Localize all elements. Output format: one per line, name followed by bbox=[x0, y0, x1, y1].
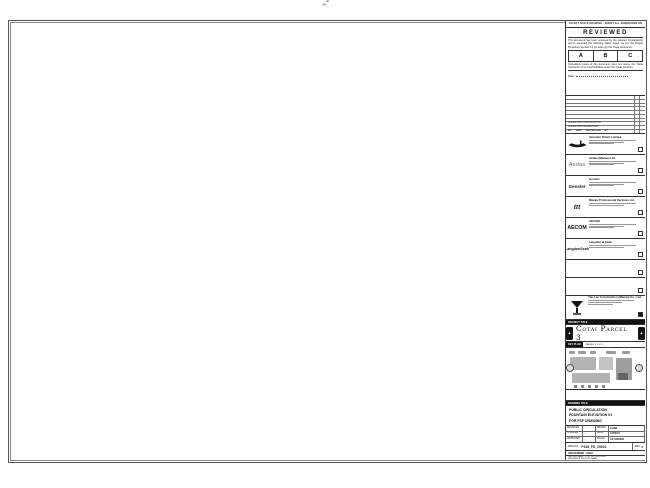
grade-b-cell: B bbox=[594, 51, 619, 61]
revision-col-divider bbox=[639, 96, 640, 133]
key-plan-node-icon bbox=[635, 364, 643, 372]
review-stamp-paragraph: This document has been reviewed by the r… bbox=[568, 39, 643, 49]
revision-header-desc: DESCRIPTION bbox=[586, 130, 601, 133]
checkbox-icon bbox=[638, 189, 644, 195]
drawing-info-table: DESIGNED - DRAWN CHAD CHECKED - DATE 12/… bbox=[566, 426, 645, 443]
elevation-tag: 01 ELEVATION 01 SCALE 1 : 50 bbox=[320, 6, 322, 7]
rev-value: 0 bbox=[641, 445, 643, 449]
key-plan-map bbox=[566, 348, 645, 390]
pedestal-dimensions: 450 1050 bbox=[326, 4, 327, 6]
dim-text: 455 bbox=[321, 5, 322, 6]
gondola-logo-icon bbox=[566, 134, 588, 154]
consultant-box-aedas: Aedas Aedas (Macau) Ltd. bbox=[566, 155, 645, 176]
consultant-box-venetian: Venetian Orient Limited bbox=[566, 134, 645, 155]
scale-label: SCALE bbox=[596, 437, 609, 443]
dwg-no-label: DWG NO : bbox=[566, 445, 579, 448]
consultant-name: Aedas (Macau) Ltd. bbox=[589, 157, 644, 160]
empty-consultant-box bbox=[566, 260, 645, 278]
revision-header-by: BY bbox=[605, 130, 608, 133]
aedas-logo: Aedas bbox=[566, 155, 588, 175]
key-plan-note: PARCEL 3, LOT 3 bbox=[583, 342, 604, 347]
revision-col-divider bbox=[634, 96, 635, 133]
drawing-title-text: PUBLIC CIRCULATION FOUNTAIN ELEVATION 01… bbox=[566, 406, 645, 426]
job-number: JOB NUMBER : 31123 bbox=[568, 452, 593, 455]
aecom-logo: AECOM bbox=[566, 218, 588, 238]
title-block: DO NOT SCALE DRAWING · VERIFY ALL DIMENS… bbox=[565, 21, 645, 460]
yau-lee-logo-icon bbox=[566, 296, 588, 319]
dim-text: 1140 bbox=[323, 1, 324, 2]
consultant-name: Langdon & Seah bbox=[589, 241, 644, 244]
dim-text: 450 bbox=[324, 1, 325, 2]
review-grade-row: A B C bbox=[568, 50, 643, 62]
consultant-name: Venetian Orient Limited bbox=[589, 136, 644, 139]
dim-text: 1180 bbox=[322, 5, 323, 6]
grade-c-cell: C bbox=[618, 51, 642, 61]
contractor-box: Yau Lee Construction (Macau) Co., Ltd. bbox=[566, 296, 645, 320]
checkbox-checked-icon bbox=[638, 312, 644, 318]
fountain-photo bbox=[326, 0, 329, 2]
review-date-row: Date : bbox=[568, 70, 643, 78]
title-block-spacer bbox=[566, 390, 645, 401]
dwg-no-value: P318_FD_25101 bbox=[579, 445, 631, 449]
level-label: F.F.L + 4750 bbox=[328, 3, 329, 4]
contractor-name: Yau Lee Construction (Macau) Co., Ltd. bbox=[588, 296, 642, 299]
empty-consultant-box bbox=[566, 278, 645, 296]
dim-text: 6750 bbox=[327, 4, 328, 5]
fleur-de-lis-icon: ✦ bbox=[638, 327, 645, 340]
consultant-name: Macau Professional Services Ltd. bbox=[589, 199, 644, 202]
bottom-dimensions: 320 455 1180 1750 660 2180 1100 1370 195… bbox=[321, 5, 329, 6]
detail-callout-boxes bbox=[321, 3, 329, 7]
gensler-logo: Gensler bbox=[566, 176, 588, 196]
dim-text: 1050 bbox=[326, 5, 327, 6]
project-title-row: ✦ Cotai Parcel 3 ✦ bbox=[566, 325, 645, 342]
consultant-box-gensler: Gensler Gensler bbox=[566, 176, 645, 197]
project-title: Cotai Parcel 3 bbox=[576, 325, 635, 342]
dim-text: 1370 bbox=[328, 6, 329, 7]
consultant-name: Gensler bbox=[589, 178, 644, 181]
dim-text: 4750 bbox=[327, 4, 328, 5]
drawing-title-line3: FOR FSF DRAWING bbox=[569, 419, 642, 424]
checkbox-icon bbox=[638, 231, 644, 237]
mps-logo: ttt bbox=[566, 197, 588, 217]
consultant-box-mps: ttt Macau Professional Services Ltd. bbox=[566, 197, 645, 218]
fleur-de-lis-icon: ✦ bbox=[566, 327, 573, 340]
rev-label: REV bbox=[635, 445, 640, 448]
consultant-box-aecom: AECOM AECOM bbox=[566, 218, 645, 239]
checkbox-icon bbox=[638, 210, 644, 216]
approved-value: - bbox=[583, 437, 596, 443]
grade-a-cell: A bbox=[569, 51, 594, 61]
fountain-elevation-drawing: F.F.L + 7500 F.F.L + 6750 F.F.L + 4750 F… bbox=[0, 0, 650, 8]
review-stamp-paragraph: Consultant review of this document does … bbox=[568, 63, 643, 70]
date-fill-line bbox=[576, 73, 628, 77]
approved-label: APPROVED bbox=[566, 437, 583, 443]
checkbox-icon bbox=[638, 168, 644, 174]
revision-header-no: NO. bbox=[568, 130, 572, 133]
dim-text: 1140 bbox=[322, 1, 323, 2]
sheet-border bbox=[8, 20, 647, 463]
date-label: Date : bbox=[568, 74, 575, 78]
revision-header-date: DATE bbox=[576, 130, 582, 133]
langdon-seah-logo: LangdonSeah bbox=[566, 239, 588, 259]
scale-value: AS SHOWN bbox=[609, 437, 645, 443]
dim-text: 7500 bbox=[328, 3, 329, 4]
review-stamp-title: REVIEWED bbox=[568, 29, 643, 38]
drawing-title-label: DRAWING TITLE bbox=[568, 402, 588, 405]
level-label: F.F.L + 6750 bbox=[328, 2, 329, 3]
checkbox-icon bbox=[638, 147, 644, 153]
level-lines: F.F.L + 7500 F.F.L + 6750 F.F.L + 4750 F… bbox=[322, 1, 330, 6]
elevation-tag-number: 01 bbox=[320, 6, 321, 7]
elevation-title: ELEVATION 01 bbox=[320, 6, 322, 7]
dwg-number-row: DWG NO : P318_FD_25101 REV 0 bbox=[566, 443, 645, 451]
checkbox-icon bbox=[638, 270, 644, 276]
project-title-label: PROJECT TITLE bbox=[568, 321, 587, 324]
dim-text: 450 bbox=[324, 1, 325, 2]
file-name-rows: CAD FILE NAME : P318_FD_25101.DWG REFERE… bbox=[566, 456, 645, 460]
checkbox-icon bbox=[638, 252, 644, 258]
drawing-sheet-page: { "header": {"note": "DO NOT SCALE DRAWI… bbox=[0, 0, 650, 488]
consultant-box-langdon: LangdonSeah Langdon & Seah bbox=[566, 239, 645, 260]
key-plan-node-icon bbox=[566, 364, 574, 372]
review-stamp: REVIEWED This document has been reviewed… bbox=[566, 28, 645, 96]
checkbox-icon bbox=[638, 288, 644, 294]
elevation-scale: SCALE 1 : 50 bbox=[320, 6, 321, 7]
ref-file-name: REFERENCE DWG FILE NAME : bbox=[568, 458, 645, 460]
sheet-note: DO NOT SCALE DRAWING · VERIFY ALL DIMENS… bbox=[566, 21, 645, 28]
revision-table: ISSUED FOR CONSTRUCTION ISSUED FOR INFOR… bbox=[566, 96, 645, 134]
consultant-name: AECOM bbox=[589, 220, 644, 223]
key-plan-label: KEY PLAN bbox=[566, 342, 583, 347]
